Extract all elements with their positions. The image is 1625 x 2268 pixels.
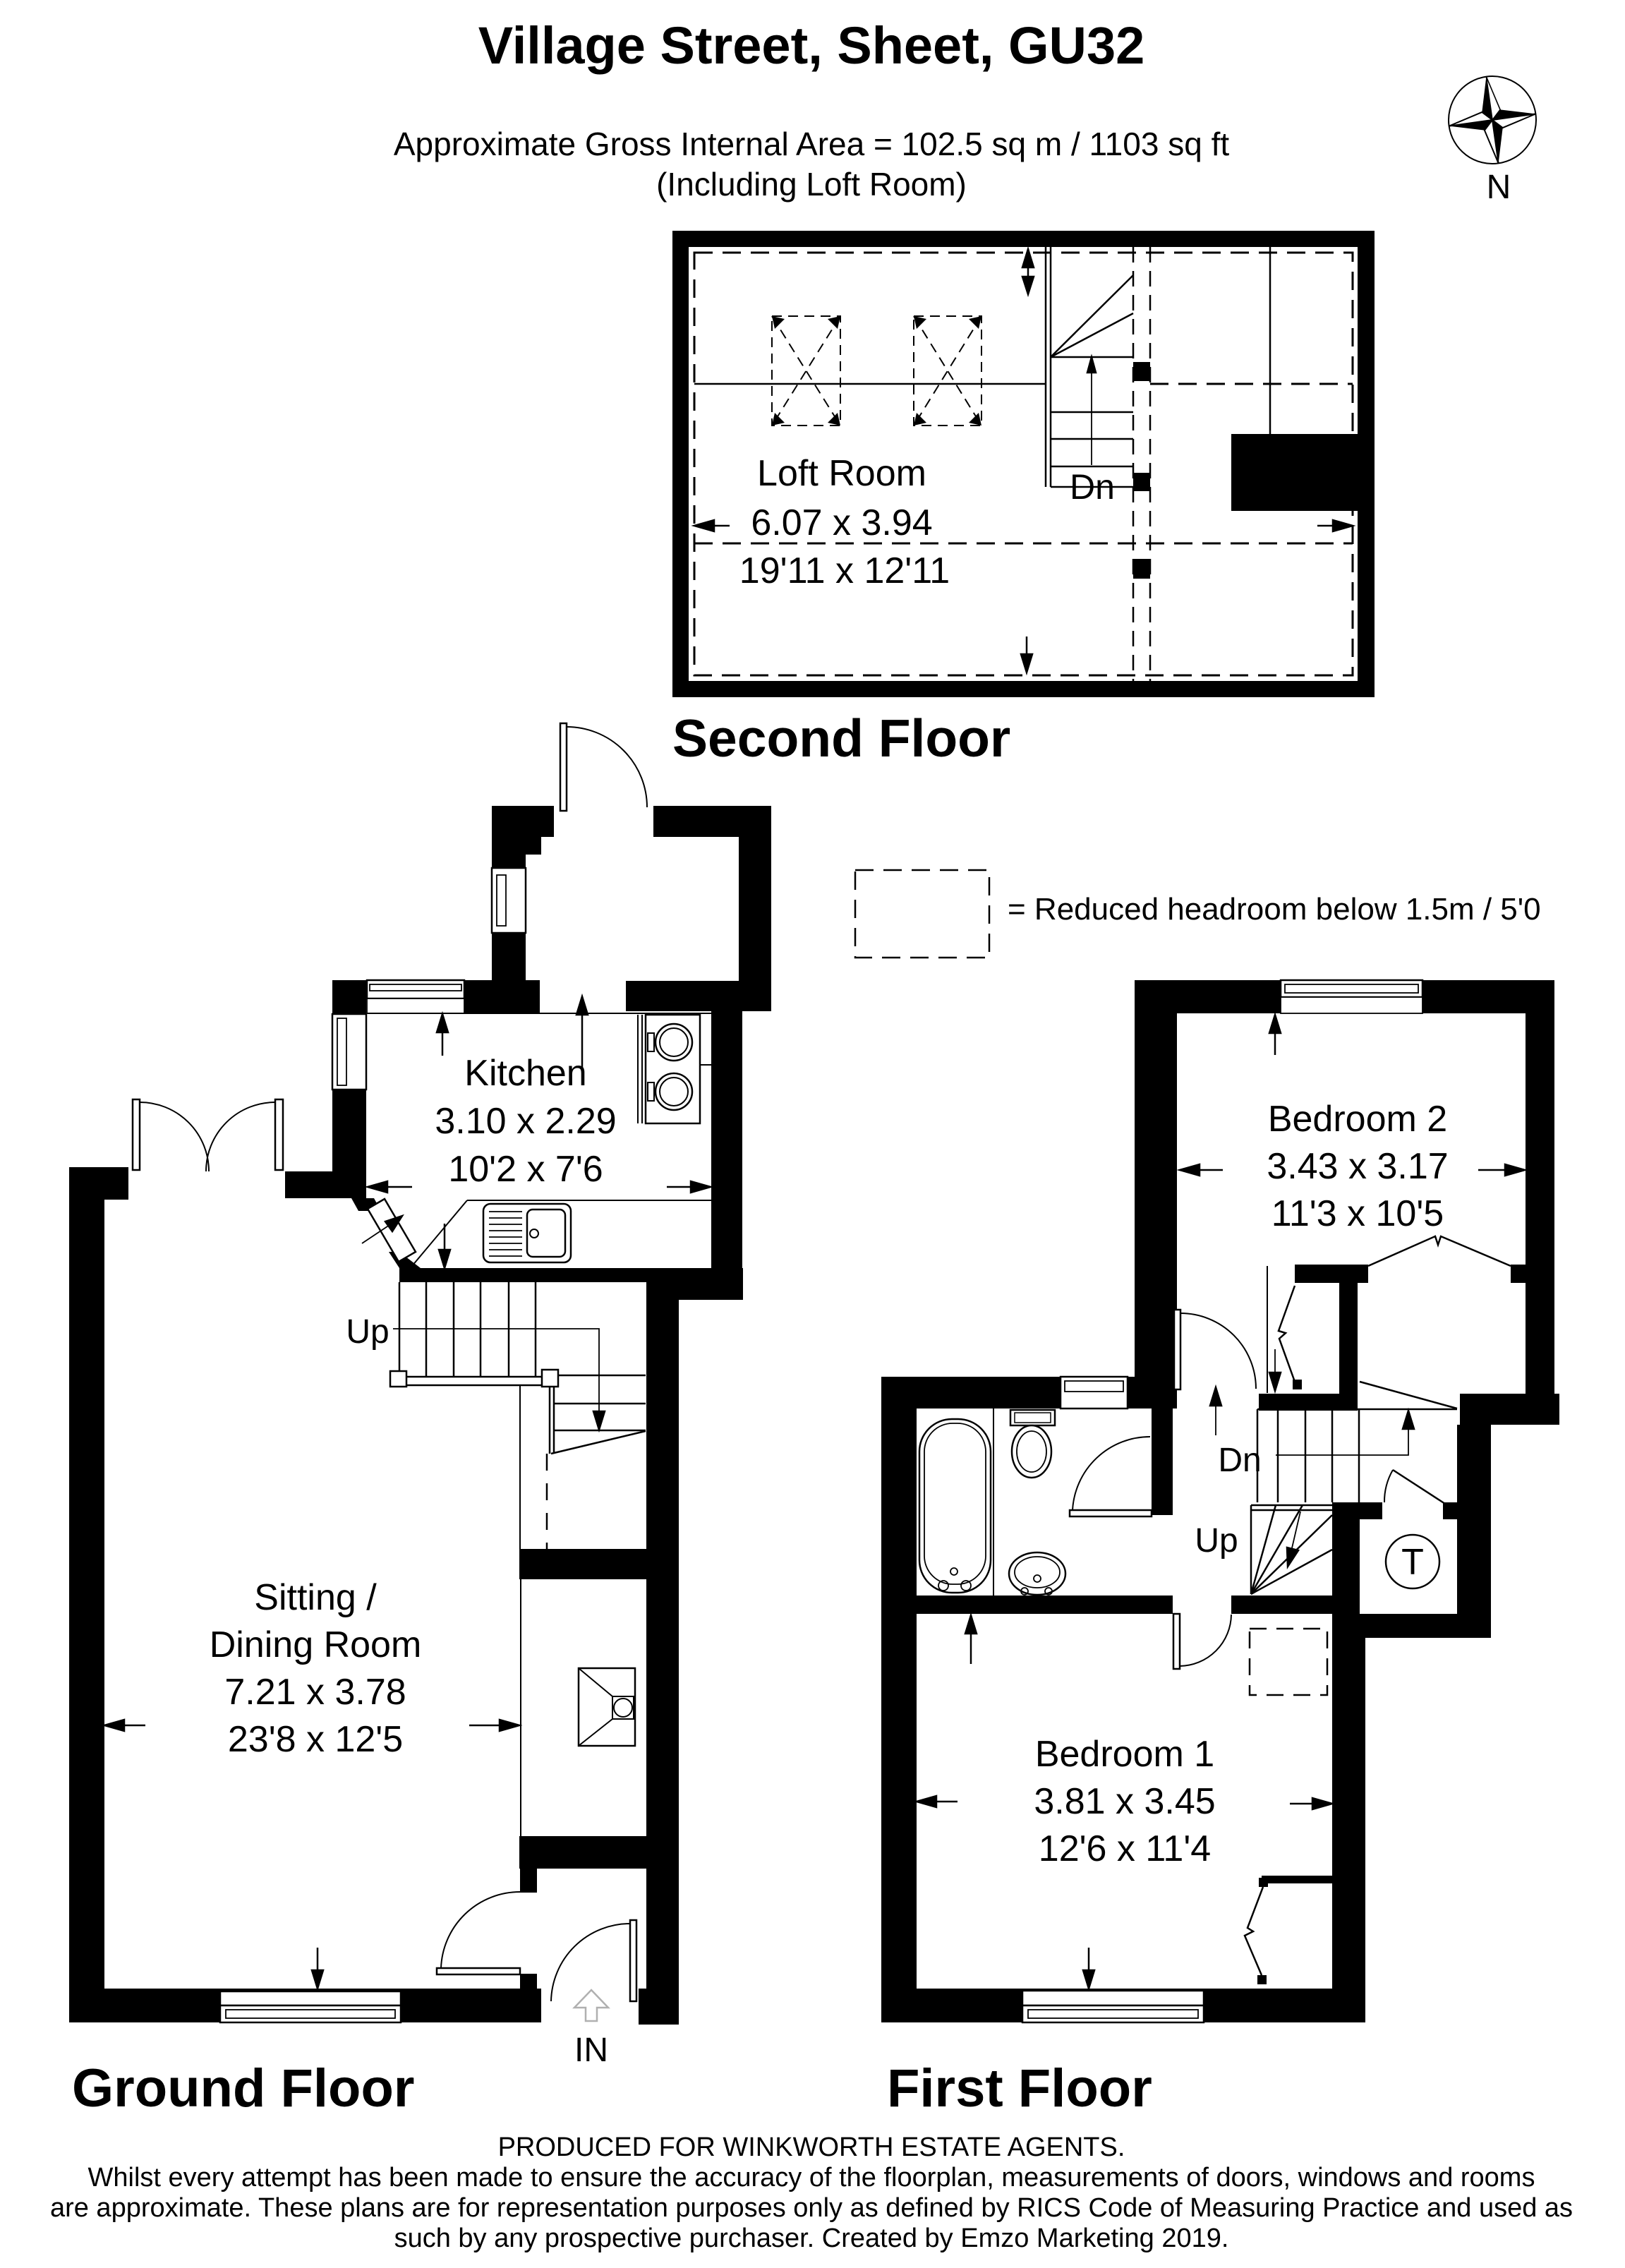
svg-text:Up: Up [1195,1522,1238,1560]
svg-text:PRODUCED FOR WINKWORTH ESTATE: PRODUCED FOR WINKWORTH ESTATE AGENTS. [498,2133,1125,2162]
svg-text:Whilst every attempt has been: Whilst every attempt has been made to en… [88,2163,1535,2192]
svg-text:11'3 x 10'5: 11'3 x 10'5 [1271,1193,1444,1234]
svg-text:Kitchen: Kitchen [464,1053,586,1094]
svg-text:Sitting /: Sitting / [254,1577,377,1618]
svg-text:19'11 x 12'11: 19'11 x 12'11 [739,550,950,591]
svg-text:First Floor: First Floor [887,2058,1152,2118]
svg-text:T: T [1401,1542,1424,1583]
svg-text:3.81 x 3.45: 3.81 x 3.45 [1034,1781,1215,1822]
svg-text:12'6 x 11'4: 12'6 x 11'4 [1039,1828,1211,1869]
svg-text:Bedroom 1: Bedroom 1 [1035,1734,1214,1775]
svg-text:Village Street, Sheet, GU32: Village Street, Sheet, GU32 [478,16,1145,75]
svg-text:Dining Room: Dining Room [210,1624,422,1665]
svg-text:Dn: Dn [1070,467,1115,507]
svg-text:3.10 x 2.29: 3.10 x 2.29 [435,1101,616,1142]
svg-text:Approximate Gross Internal Are: Approximate Gross Internal Area = 102.5 … [394,126,1229,162]
svg-text:7.21 x 3.78: 7.21 x 3.78 [224,1672,406,1713]
svg-text:3.43 x 3.17: 3.43 x 3.17 [1267,1146,1448,1187]
svg-text:Dn: Dn [1218,1442,1261,1479]
svg-text:IN: IN [574,2032,608,2069]
svg-text:Up: Up [346,1313,389,1351]
svg-text:Loft Room: Loft Room [757,453,926,494]
svg-text:Second Floor: Second Floor [672,708,1010,768]
svg-text:23'8 x 12'5: 23'8 x 12'5 [228,1719,403,1760]
svg-text:6.07 x 3.94: 6.07 x 3.94 [751,502,932,543]
svg-text:are approximate. These plans a: are approximate. These plans are for rep… [50,2193,1573,2223]
svg-text:= Reduced headroom below 1.5m: = Reduced headroom below 1.5m / 5'0 [1008,892,1541,927]
svg-text:Ground Floor: Ground Floor [72,2058,414,2118]
svg-text:(Including Loft Room): (Including Loft Room) [656,166,967,203]
svg-text:such by any prospective purcha: such by any prospective purchaser. Creat… [394,2224,1229,2253]
svg-text:N: N [1487,169,1511,206]
svg-text:Bedroom 2: Bedroom 2 [1268,1099,1447,1140]
svg-text:10'2 x 7'6: 10'2 x 7'6 [448,1149,603,1190]
